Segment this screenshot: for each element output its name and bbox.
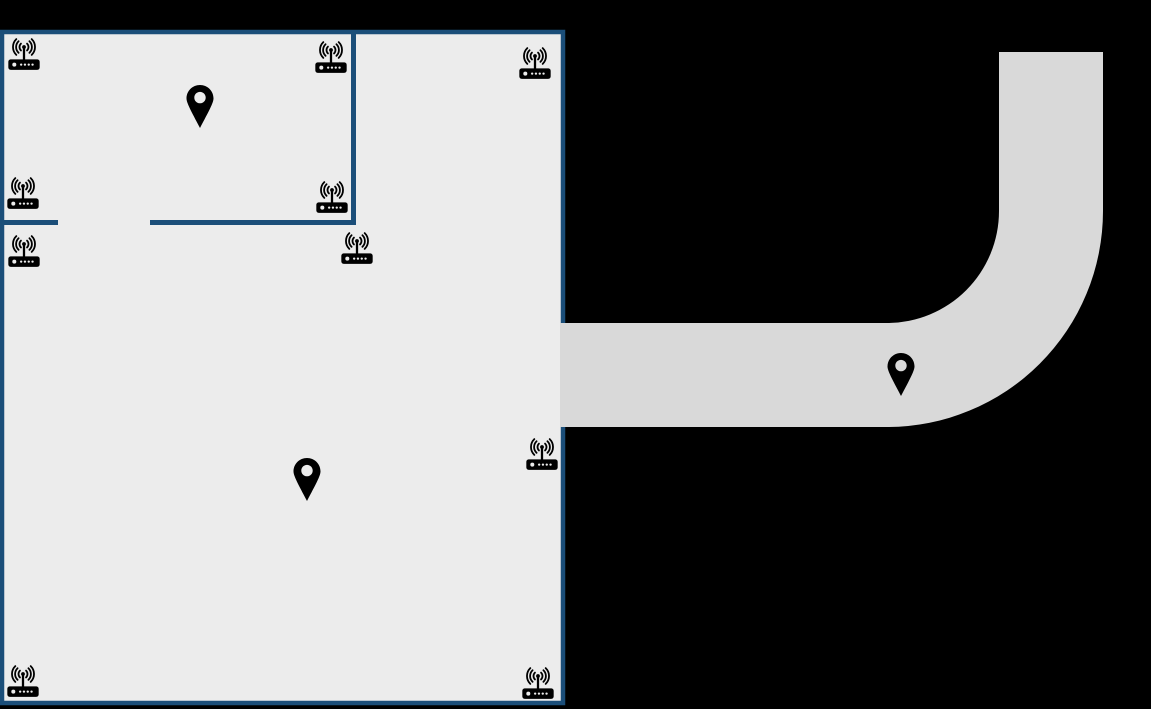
- floor-plan-layer: [2, 32, 563, 703]
- wifi-floorplan-diagram: [0, 0, 1151, 709]
- scene-svg: [0, 0, 1151, 709]
- floor-plan-outline: [2, 32, 563, 703]
